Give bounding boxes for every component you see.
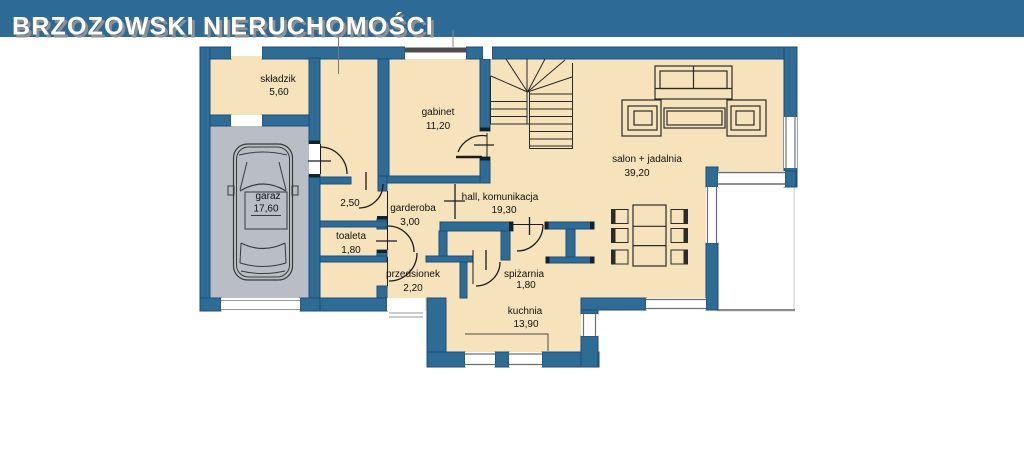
svg-text:salon + jadalnia: salon + jadalnia: [612, 154, 682, 165]
svg-text:spiżarnia: spiżarnia: [504, 269, 544, 280]
svg-text:gabinet: gabinet: [422, 107, 455, 118]
svg-text:2,50: 2,50: [340, 198, 360, 209]
svg-text:1,80: 1,80: [341, 245, 361, 256]
svg-text:przedsionek: przedsionek: [386, 269, 441, 280]
svg-text:19,30: 19,30: [491, 205, 516, 216]
svg-text:17,60: 17,60: [253, 204, 278, 215]
svg-text:garaż: garaż: [255, 191, 280, 202]
svg-text:toaleta: toaleta: [336, 231, 366, 242]
svg-text:2,20: 2,20: [403, 283, 423, 294]
svg-text:3,00: 3,00: [400, 217, 420, 228]
svg-text:1,80: 1,80: [516, 280, 536, 291]
svg-text:11,20: 11,20: [426, 121, 451, 132]
svg-text:garderoba: garderoba: [390, 203, 436, 214]
svg-text:39,20: 39,20: [624, 168, 649, 179]
svg-text:składzik: składzik: [260, 74, 297, 85]
svg-text:hall, komunikacja: hall, komunikacja: [462, 192, 539, 203]
svg-text:kuchnia: kuchnia: [508, 306, 543, 317]
svg-text:BRZOZOWSKI NIERUCHOMOŚCI: BRZOZOWSKI NIERUCHOMOŚCI: [12, 11, 434, 41]
svg-text:13,90: 13,90: [513, 319, 538, 330]
svg-text:5,60: 5,60: [269, 87, 289, 98]
